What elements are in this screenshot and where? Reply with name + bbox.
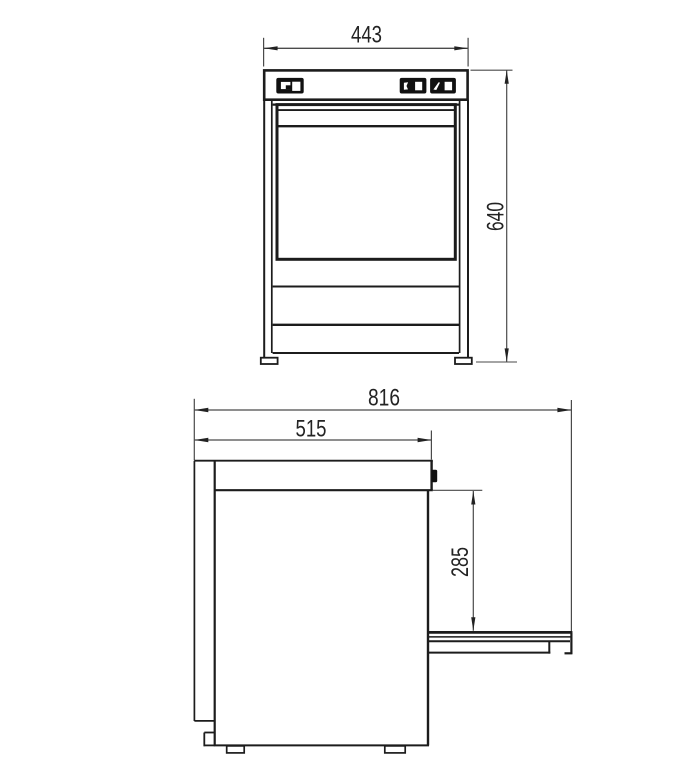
svg-text:443: 443: [351, 22, 382, 49]
svg-text:515: 515: [296, 416, 327, 443]
svg-text:285: 285: [447, 547, 474, 577]
svg-text:640: 640: [483, 202, 510, 231]
svg-text:816: 816: [368, 385, 400, 412]
